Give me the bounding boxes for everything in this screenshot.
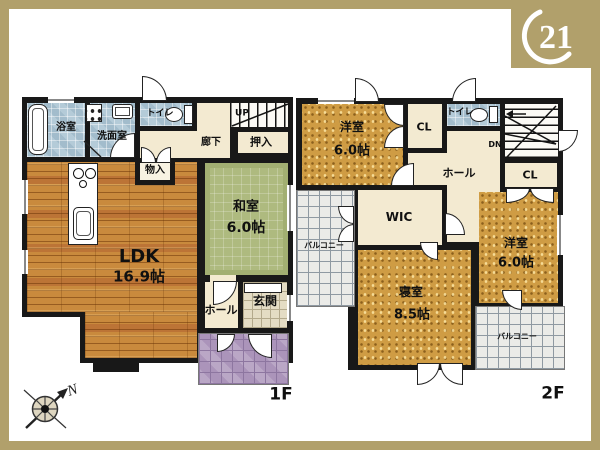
frame-left	[0, 0, 9, 450]
window	[22, 180, 28, 214]
label-stairs-dn: DN	[488, 141, 501, 149]
label-oshiire: 押入	[250, 137, 272, 148]
label-closet2: CL	[522, 170, 537, 181]
label-hall-2f: ホール	[443, 168, 476, 179]
century21-logo: 21	[511, 0, 600, 68]
label-genkan: 玄関	[253, 295, 277, 307]
label-washroom: 洗面室	[97, 132, 127, 142]
label-ldk-size: 16.9帖	[113, 270, 165, 285]
label-yoshitsu1-size: 6.0帖	[334, 145, 370, 158]
label-yoshitsu2-size: 6.0帖	[498, 257, 534, 270]
logo-number: 21	[539, 19, 573, 56]
label-ldk-name: LDK	[119, 248, 159, 266]
frame-bottom	[0, 441, 600, 450]
label-wic: WIC	[386, 211, 413, 223]
label-yoshitsu2-name: 洋室	[504, 237, 528, 249]
stairs-2f	[505, 104, 558, 158]
label-bedroom-name: 寝室	[399, 286, 423, 298]
porch-tile	[198, 333, 289, 385]
label-floor1: 1F	[269, 387, 292, 404]
room-ldk-lower	[85, 312, 197, 358]
bathtub-icon	[28, 104, 48, 155]
label-washitsu-size: 6.0帖	[227, 221, 266, 235]
bedroom-terrace-door-left	[417, 363, 440, 385]
label-corridor: 廊下	[201, 138, 221, 148]
floor1-notch	[22, 317, 80, 363]
label-bath: 浴室	[56, 123, 76, 133]
label-storage: 物入	[145, 166, 165, 176]
window	[287, 185, 293, 231]
window	[48, 97, 74, 103]
stairs-2f-door	[558, 130, 578, 152]
floor-plan-page: N 浴室 洗面室 トイレ UP 廊下 押入 物入 和室 6.0帖 LDK 16.…	[0, 0, 600, 450]
window	[22, 250, 28, 274]
window	[318, 98, 354, 104]
label-closet1: CL	[416, 122, 431, 133]
room-washitsu	[205, 163, 288, 275]
toilet-tank-1f-icon	[184, 105, 193, 124]
washing-machine-icon	[86, 104, 102, 122]
shoe-cabinet-icon	[244, 283, 282, 293]
toilet-2f-door	[452, 78, 476, 102]
label-balcony-left: バルコニー	[304, 242, 344, 250]
room-corridor	[197, 103, 230, 158]
compass-north-label: N	[64, 381, 80, 400]
label-washitsu-name: 和室	[233, 201, 259, 214]
label-stairs-up: UP	[235, 110, 249, 119]
window	[287, 295, 293, 321]
label-balcony-right: バルコニー	[497, 333, 537, 341]
toilet-1f-door	[142, 76, 167, 101]
yoshitsu1-top-door	[355, 78, 379, 102]
window	[557, 215, 563, 255]
label-hall-1f: ホール	[205, 305, 238, 316]
washbasin-icon	[112, 104, 133, 119]
kitchen-counter-icon	[68, 163, 98, 245]
label-toilet-1f: トイレ	[146, 110, 173, 119]
label-toilet-2f: トイレ	[446, 109, 473, 118]
toilet-tank-2f-icon	[489, 106, 498, 123]
bedroom-terrace-door-right	[440, 363, 463, 385]
frame-top	[0, 0, 600, 9]
label-floor2: 2F	[541, 386, 564, 403]
label-bedroom-size: 8.5帖	[394, 309, 430, 322]
label-yoshitsu1-name: 洋室	[340, 121, 364, 133]
compass-icon: N	[24, 381, 81, 428]
floor1-step	[93, 363, 139, 372]
